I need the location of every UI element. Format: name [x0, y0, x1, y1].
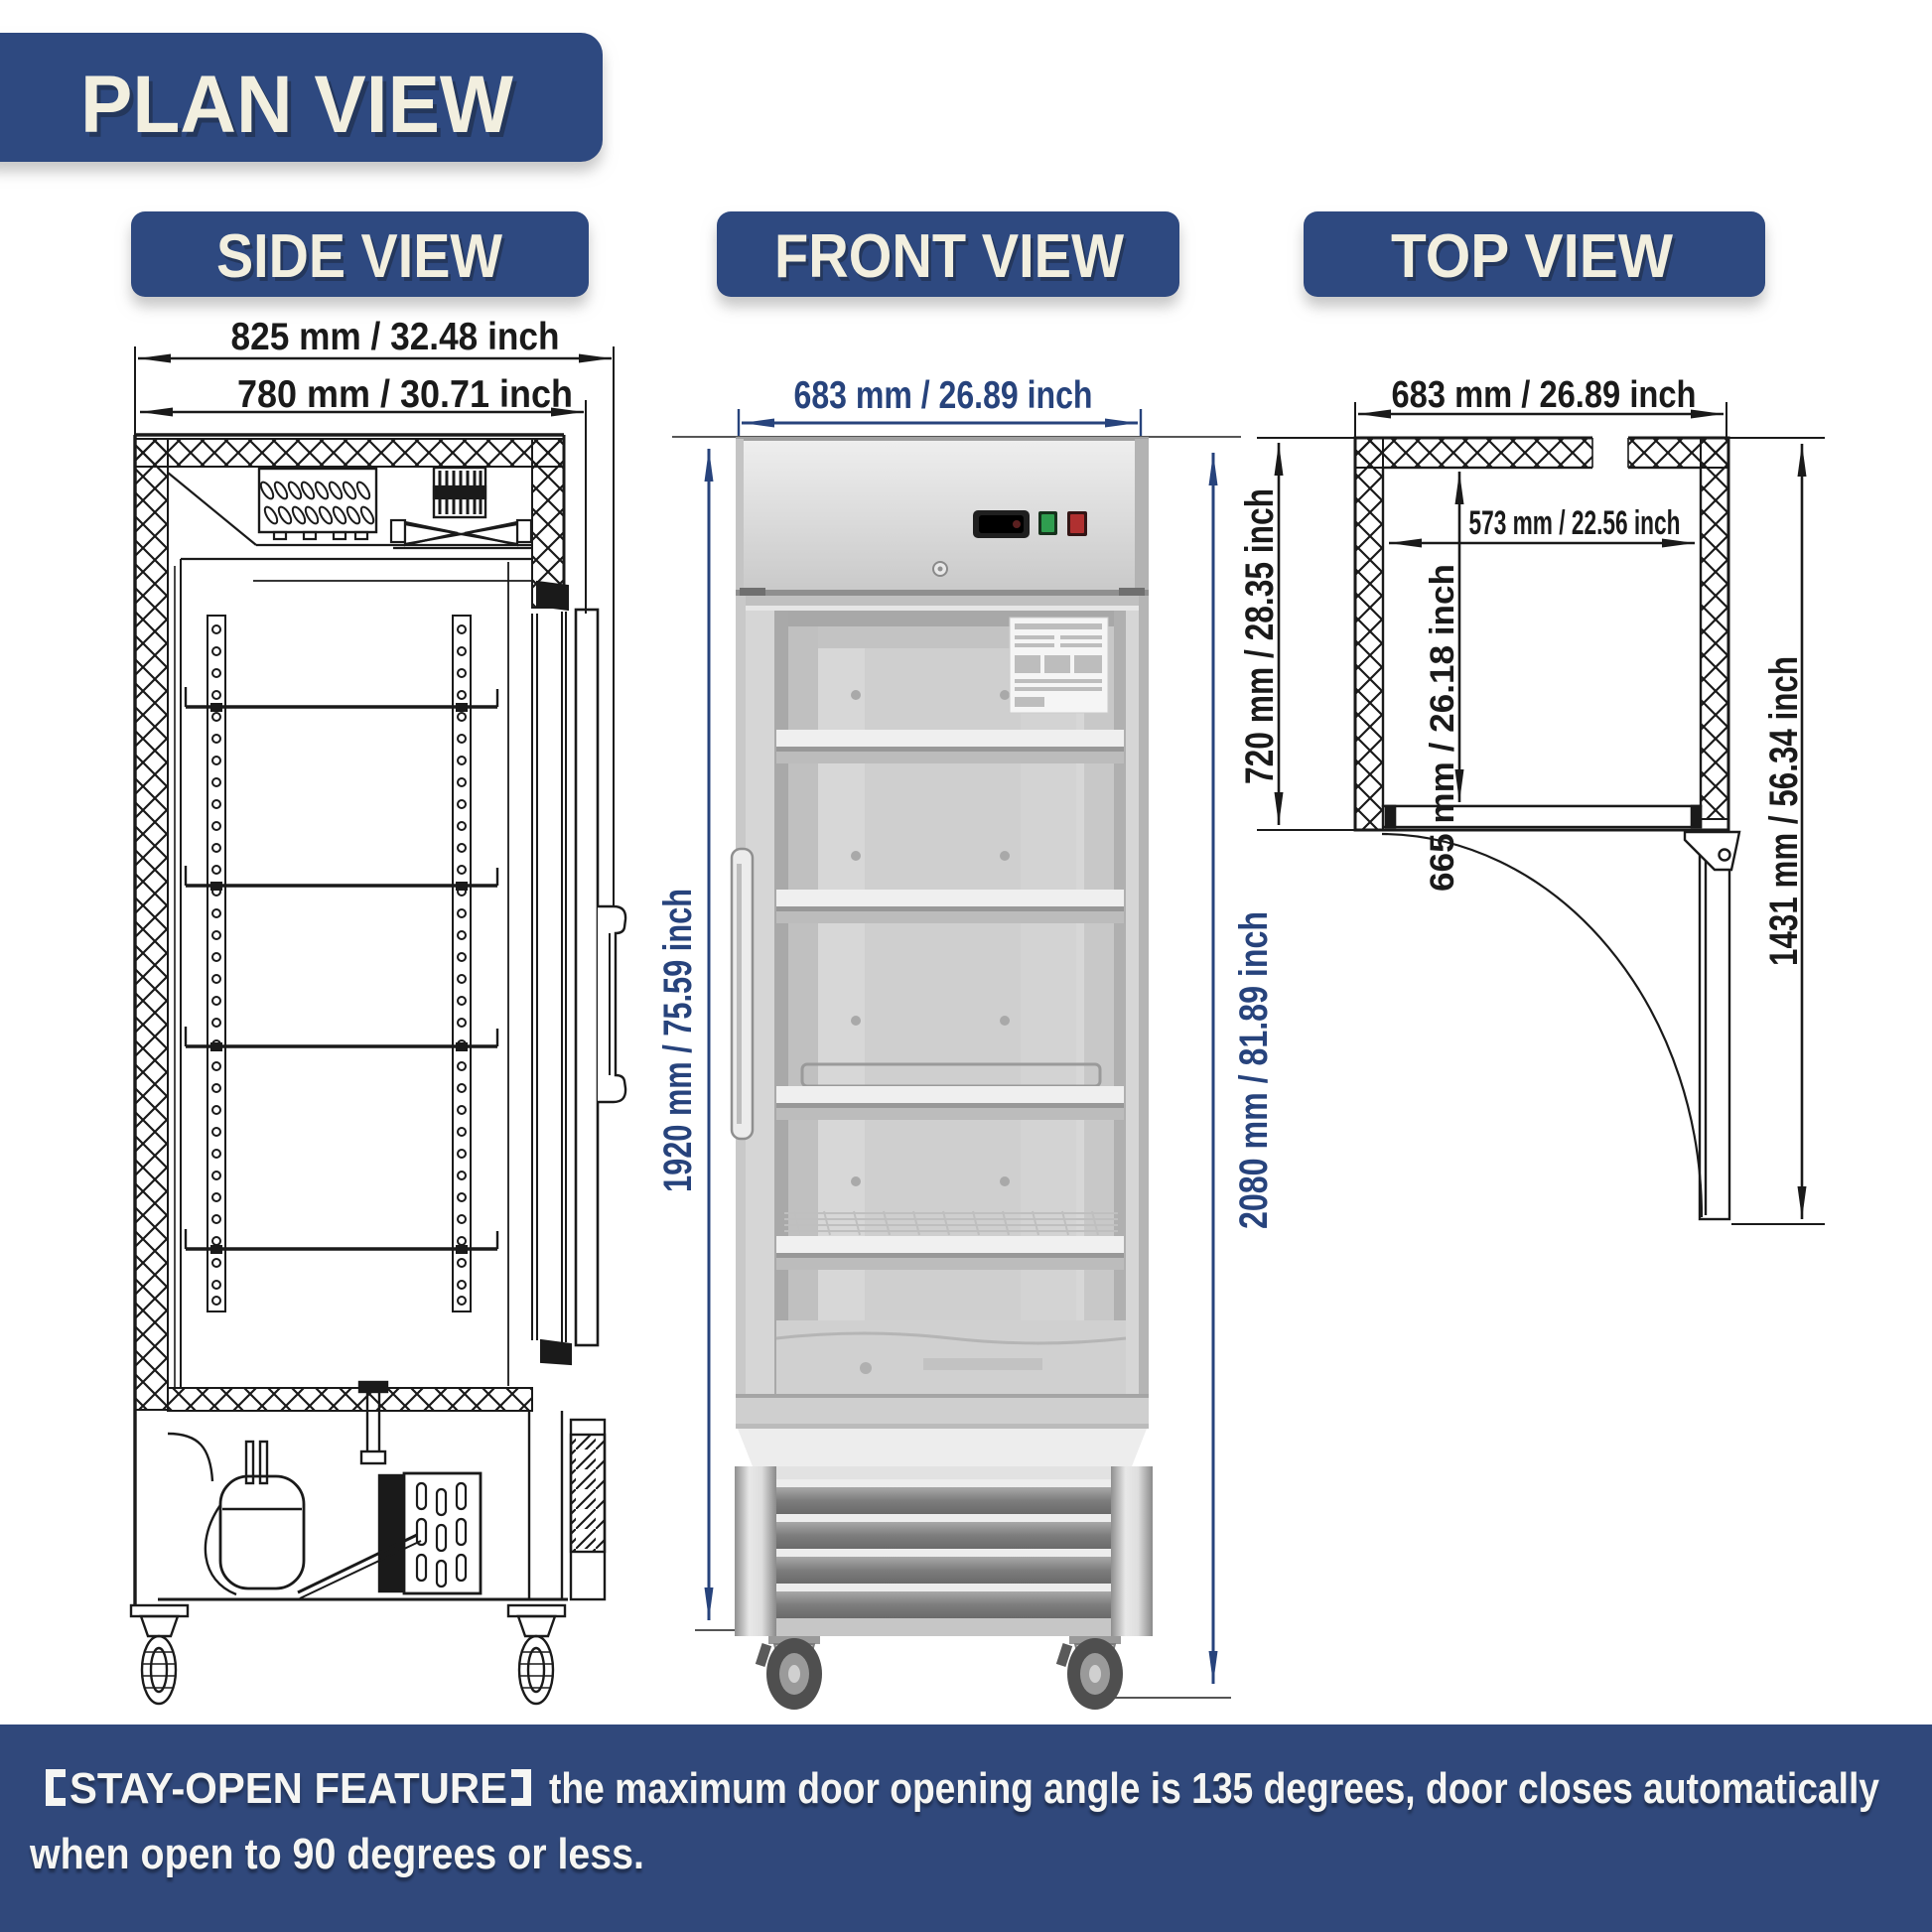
svg-text:1431 mm / 56.34 inch: 1431 mm / 56.34 inch	[1762, 656, 1806, 966]
svg-text:780 mm / 30.71 inch: 780 mm / 30.71 inch	[237, 373, 573, 416]
svg-text:SIDE VIEW: SIDE VIEW	[216, 222, 502, 291]
svg-text:2080 mm / 81.89 inch: 2080 mm / 81.89 inch	[1232, 911, 1276, 1229]
svg-text:PLAN VIEW: PLAN VIEW	[80, 60, 514, 150]
svg-text:when open to 90 degrees or les: when open to 90 degrees or less.	[29, 1830, 644, 1878]
svg-text:573 mm / 22.56 inch: 573 mm / 22.56 inch	[1469, 504, 1681, 542]
svg-text:683 mm / 26.89 inch: 683 mm / 26.89 inch	[794, 374, 1093, 417]
svg-text:720 mm / 28.35 inch: 720 mm / 28.35 inch	[1238, 488, 1282, 784]
svg-text:683 mm / 26.89 inch: 683 mm / 26.89 inch	[1392, 374, 1697, 416]
svg-text:665 mm / 26.18 inch: 665 mm / 26.18 inch	[1424, 564, 1461, 892]
svg-text:the maximum door opening angle: the maximum door opening angle is 135 de…	[549, 1764, 1879, 1813]
svg-text:1920 mm / 75.59 inch: 1920 mm / 75.59 inch	[656, 889, 700, 1192]
svg-text:STAY-OPEN FEATURE: STAY-OPEN FEATURE	[69, 1764, 507, 1813]
svg-text:TOP VIEW: TOP VIEW	[1391, 222, 1673, 291]
svg-text:FRONT VIEW: FRONT VIEW	[774, 222, 1124, 291]
svg-text:825 mm / 32.48 inch: 825 mm / 32.48 inch	[231, 316, 560, 358]
